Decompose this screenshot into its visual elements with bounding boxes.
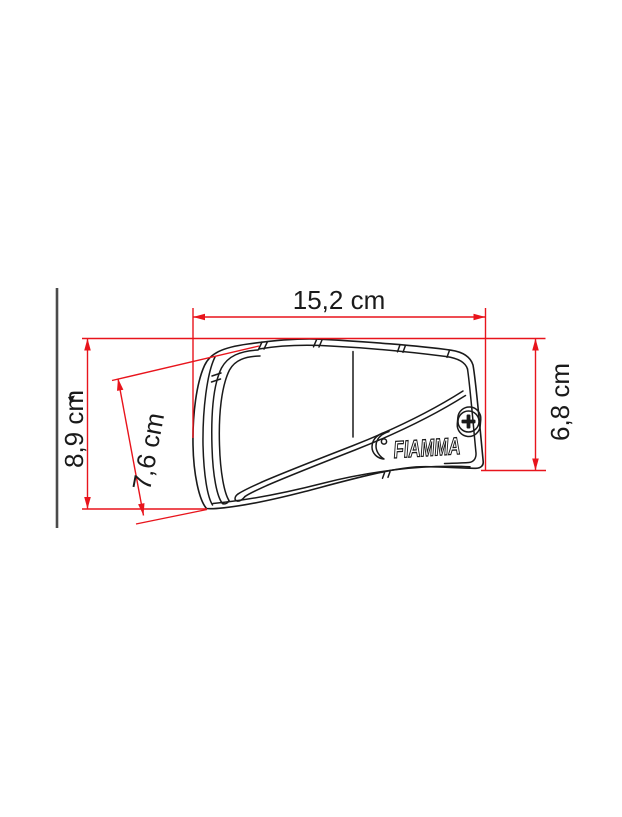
dimension-label-depth: 7,6 cm	[126, 410, 170, 492]
fiamma-logo-text: FIAMMA	[393, 433, 462, 464]
dimension-label-width: 15,2 cm	[293, 285, 386, 315]
dimension-label-height-left: 8,9 cm	[59, 390, 89, 468]
arrow-up-icon	[532, 339, 539, 351]
dimension-diagram: FIAMMA 15,2 cm 8,9 cm	[0, 0, 622, 817]
arrow-down-icon	[532, 459, 539, 471]
arrow-up-icon	[117, 379, 123, 391]
diagram-canvas: FIAMMA 15,2 cm 8,9 cm	[0, 0, 622, 817]
dimension-label-height-right: 6,8 cm	[545, 363, 575, 441]
awning-case-drawing: FIAMMA	[193, 339, 483, 509]
arrow-left-icon	[193, 314, 205, 321]
arrow-up-icon	[84, 339, 91, 351]
extension-line-bottom	[136, 510, 207, 525]
arrow-down-icon	[84, 497, 91, 509]
case-outer-profile	[193, 339, 483, 509]
dimension-height-right: 6,8 cm	[481, 339, 575, 471]
arrow-right-icon	[474, 314, 486, 321]
